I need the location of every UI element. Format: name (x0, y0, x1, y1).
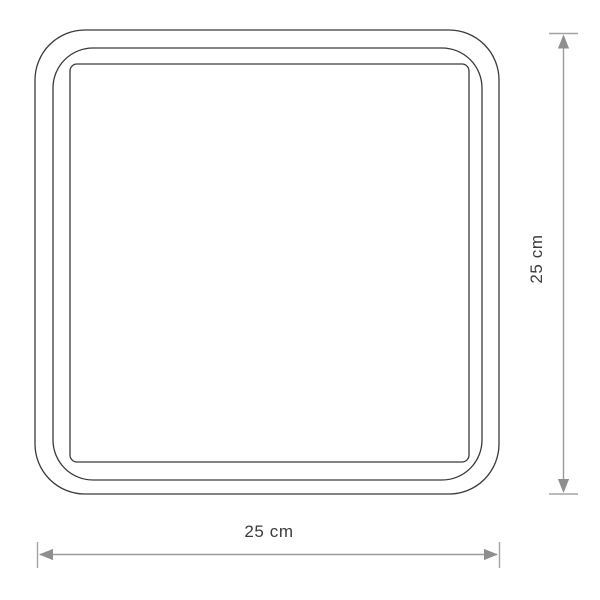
lamp-outer-frame (35, 30, 499, 494)
arrowhead-down-icon (558, 479, 569, 493)
width-dimension-label: 25 cm (244, 522, 293, 541)
lamp-outline-group (35, 30, 499, 494)
arrowhead-right-icon (484, 549, 498, 560)
height-dimension: 25 cm (527, 34, 578, 495)
lamp-diffuser-panel (70, 64, 469, 462)
height-dimension-label: 25 cm (527, 234, 546, 283)
dimension-drawing-svg: 25 cm 25 cm (0, 0, 600, 600)
arrowhead-up-icon (558, 35, 569, 49)
lamp-middle-frame (53, 48, 482, 480)
arrowhead-left-icon (39, 549, 53, 560)
width-dimension: 25 cm (38, 522, 500, 568)
product-dimension-diagram: 25 cm 25 cm (0, 0, 600, 600)
